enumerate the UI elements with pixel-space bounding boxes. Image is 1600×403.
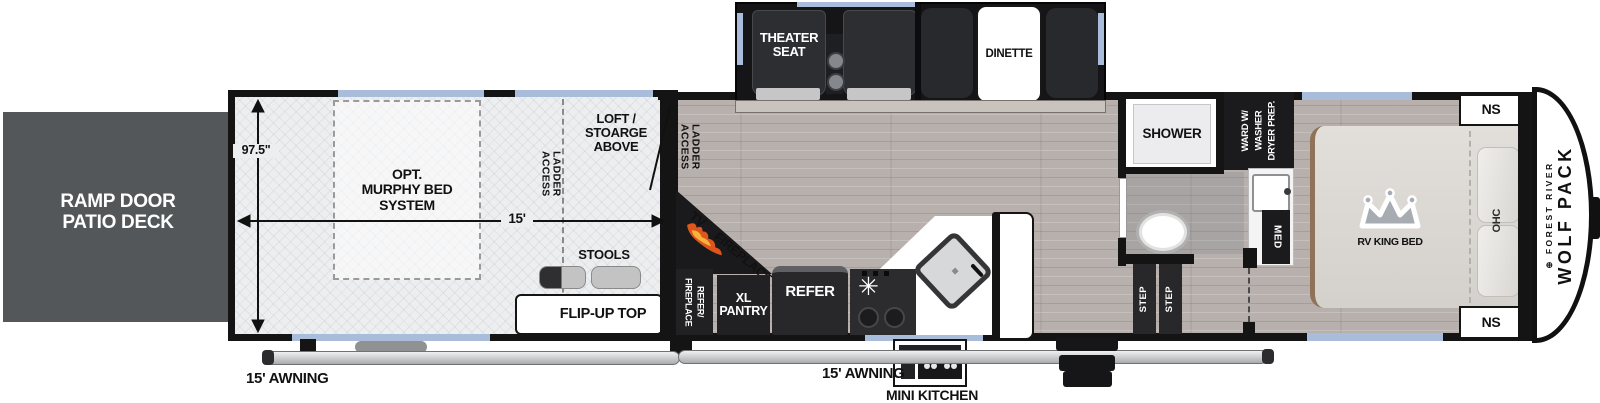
- bath-sink: [1252, 174, 1290, 212]
- cupholder: [827, 73, 845, 91]
- slideout-window-right: [1098, 13, 1104, 65]
- entry-steps: [1056, 337, 1118, 351]
- awning-rail-left: [266, 351, 680, 365]
- cupholder: [827, 52, 845, 70]
- brand-maker-label: ⊕ FOREST RIVER: [1544, 145, 1555, 284]
- brand-emblem-icon: ⊕: [1544, 259, 1554, 269]
- garage-ladder-access-label: LADDER ACCESS: [539, 131, 562, 217]
- flip-up-top-label: FLIP-UP TOP: [560, 307, 646, 323]
- overhead-cabinet: OHC: [1489, 196, 1507, 246]
- floorplan-canvas: RAMP DOOR PATIO DECK OPT. MURPHY BED SYS…: [0, 0, 1600, 403]
- awning-rail-endcap: [262, 350, 274, 365]
- kitchen-island: [992, 212, 1034, 340]
- stool: [539, 266, 586, 289]
- hitch-pin: [1592, 197, 1600, 239]
- nightstand-top: NS: [1459, 94, 1523, 126]
- sink-faucet: [970, 263, 984, 277]
- entry-steps: [1059, 355, 1115, 371]
- wardrobe-washer-dryer: WARD W/ WASHER DRYER PREP.: [1224, 92, 1294, 170]
- refer-label: REFER: [785, 284, 834, 335]
- stove: ✳: [850, 269, 916, 335]
- bedroom-window-bottom: [1307, 333, 1443, 341]
- medicine-cabinet: MED: [1262, 210, 1290, 264]
- step-label: STEP: [1165, 286, 1175, 312]
- dinette-label: DINETTE: [985, 48, 1032, 60]
- front-cap-branding: ⊕ FOREST RIVER WOLF PACK: [1528, 87, 1592, 343]
- loft-storage-label: LOFT / STOARGE ABOVE: [564, 112, 668, 154]
- step-label: STEP: [1139, 286, 1149, 312]
- nightstand-bottom: NS: [1459, 306, 1523, 339]
- rv-king-bed-label: RV KING BED: [1350, 237, 1430, 248]
- refer-fireplace-label: REFER/ FIREPLACE: [682, 278, 706, 326]
- awning-rail-endcap: [1262, 349, 1274, 364]
- awning-rail-right: [678, 350, 1268, 364]
- stool: [591, 266, 641, 289]
- awning-right-label: 15' AWNING: [822, 366, 962, 382]
- brand-model-label: WOLF PACK: [1555, 145, 1576, 284]
- shower-floor: SHOWER: [1133, 104, 1211, 164]
- dinette-table: DINETTE: [976, 5, 1042, 103]
- toilet: [1136, 210, 1190, 254]
- bath-wall-upper: [1118, 168, 1126, 178]
- garage-length-dim-label: 15': [501, 212, 533, 227]
- bedroom-deck-edge: [1248, 268, 1250, 322]
- garage-window-bottom: [292, 334, 490, 341]
- burner-icon: ✳: [858, 275, 879, 300]
- bath-bottom-wall: [1124, 254, 1194, 264]
- ns-label: NS: [1482, 315, 1501, 330]
- xl-pantry-label: XL PANTRY: [719, 292, 767, 319]
- bath-door: [1119, 178, 1127, 238]
- oven-burner: [884, 307, 905, 328]
- mini-kitchen-label: MINI KITCHEN: [882, 388, 982, 403]
- entry-steps: [1063, 371, 1112, 387]
- dinette-bench: [1046, 8, 1098, 98]
- step: STEP: [1133, 264, 1156, 334]
- sink-drain: [952, 268, 959, 275]
- bedroom-window-top: [1302, 92, 1412, 100]
- refrigerator: REFER: [772, 266, 848, 335]
- oven-burner: [858, 307, 879, 328]
- refer-fireplace-cabinet: REFER/ FIREPLACE: [676, 269, 713, 335]
- slideout-window-top: [797, 2, 915, 7]
- bedroom-wall-stub-top: [1243, 248, 1257, 268]
- med-label: MED: [1271, 225, 1282, 249]
- ohc-label: OHC: [1492, 209, 1504, 233]
- theater-footrest: [756, 88, 820, 100]
- living-ladder-access-label: LADDER ACCESS: [678, 104, 701, 190]
- garage-window-top-1: [338, 90, 484, 97]
- slideout-threshold: [735, 100, 1106, 113]
- theater-seat-right: [843, 10, 917, 96]
- bed-head-divider: [1469, 131, 1471, 303]
- slideout-window-left: [737, 13, 743, 65]
- murphy-bed-label: OPT. MURPHY BED SYSTEM: [362, 167, 453, 212]
- shower-label: SHOWER: [1143, 127, 1202, 142]
- awning-left-label: 15' AWNING: [246, 371, 396, 387]
- bedroom-wall-stub-bottom: [1243, 322, 1255, 336]
- murphy-bed-area: OPT. MURPHY BED SYSTEM: [333, 100, 481, 280]
- dinette-bench: [921, 8, 973, 98]
- ward-label: WARD W/ WASHER DRYER PREP.: [1239, 101, 1279, 161]
- stools-label: STOOLS: [566, 248, 642, 262]
- step: STEP: [1159, 264, 1182, 334]
- ramp-deck-label: RAMP DOOR PATIO DECK: [28, 192, 208, 233]
- ns-label: NS: [1482, 102, 1501, 117]
- garage-height-dim-label: 97.5": [233, 144, 279, 158]
- xl-pantry: XL PANTRY: [717, 275, 770, 335]
- theater-footrest: [847, 88, 911, 100]
- bath-faucet: [1284, 188, 1291, 195]
- flip-up-top-counter: FLIP-UP TOP: [515, 294, 663, 335]
- garage-window-top-2: [515, 90, 653, 97]
- theater-seat-label: THEATER SEAT: [754, 31, 824, 59]
